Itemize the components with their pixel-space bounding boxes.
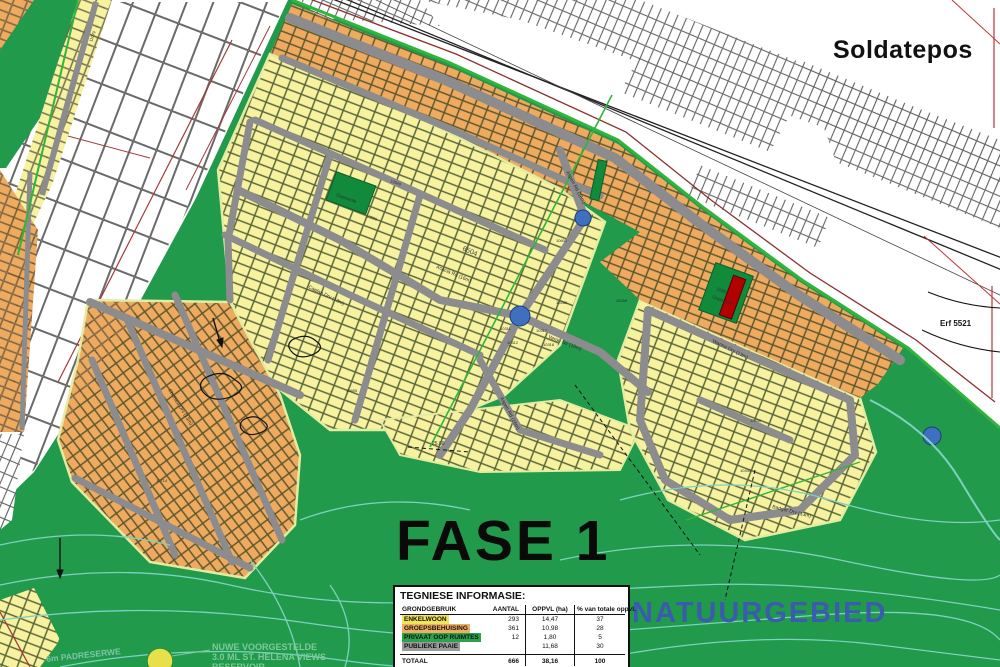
row-oppvl: 10,98 [525,624,574,633]
plot-number: 10655 [346,388,358,393]
row-pct: 37 [574,615,625,624]
col-header-grondgebruik: GRONDGEBRUIK [400,605,488,615]
plot-number: 10312 [507,340,519,345]
technical-info-table: TEGNIESE INFORMASIE: GRONDGEBRUIK AANTAL… [393,585,630,667]
col-header-aantal: AANTAL [488,605,525,615]
erf-5521-label: Erf 5521 [940,319,972,328]
reservoir-note-line2: 3.0 ML ST. HELENA VIEWS [212,652,326,662]
col-header-pct: % van totale oppvl. [574,605,625,615]
plot-number: 10286 [556,300,568,305]
natuurgebied-label: NATUURGEBIED [632,597,887,630]
reservoir-note: NUWE VOORGESTELDE 3.0 ML ST. HELENA VIEW… [212,642,326,667]
landuse-chip: PUBLIEKE PAAIE [402,642,460,651]
row-label: PRIVAAT OOP RUIMTES [400,633,488,642]
plot-number: 10269 [616,298,628,303]
dimension-label: 25.00 [432,441,445,447]
row-label: PUBLIEKE PAAIE [400,642,488,651]
landuse-chip: PRIVAAT OOP RUIMTES [402,633,481,642]
total-pct: 100 [574,654,625,666]
row-oppvl: 1,80 [525,633,574,642]
row-pct: 5 [574,633,625,642]
row-label: GROEPSBEHUISING [400,624,488,633]
plot-number: 10311 [500,326,512,331]
row-oppvl: 14,47 [525,615,574,624]
total-aantal: 666 [488,654,525,666]
fase1-title: FASE 1 [396,508,610,574]
row-aantal: 361 [488,624,525,633]
row-pct: 28 [574,624,625,633]
total-oppvl: 38,16 [525,654,574,666]
row-label: ENKELWOON [400,615,488,624]
row-aantal [488,642,525,651]
plot-number: 10444 [740,468,752,473]
reservoir-note-line3: RESERVOIR [212,662,326,667]
col-header-oppvl: OPPVL (ha) [525,605,574,615]
township-plan-screenshot: 6504 Erf 5521 Acacia Rd (16m) Aspen Rd (… [0,0,1000,667]
table-title: TEGNIESE INFORMASIE: [400,590,623,602]
reservoir-circle [147,648,173,667]
row-aantal: 293 [488,615,525,624]
plot-number: 10430 [750,418,762,423]
reservoir-note-line1: NUWE VOORGESTELDE [212,642,326,652]
plot-number: 10714 [156,478,168,483]
row-aantal: 12 [488,633,525,642]
row-pct: 30 [574,642,625,651]
plot-number: 10601 [556,238,568,243]
plot-number: 10318 [543,342,555,347]
soldatepos-title: Soldatepos [833,36,973,65]
landuse-chip: GROEPSBEHUISING [402,624,470,633]
landuse-chip: ENKELWOON [402,615,449,624]
total-label: TOTAAL [400,654,488,666]
plot-number: 10317 [536,328,548,333]
row-oppvl: 11,68 [525,642,574,651]
